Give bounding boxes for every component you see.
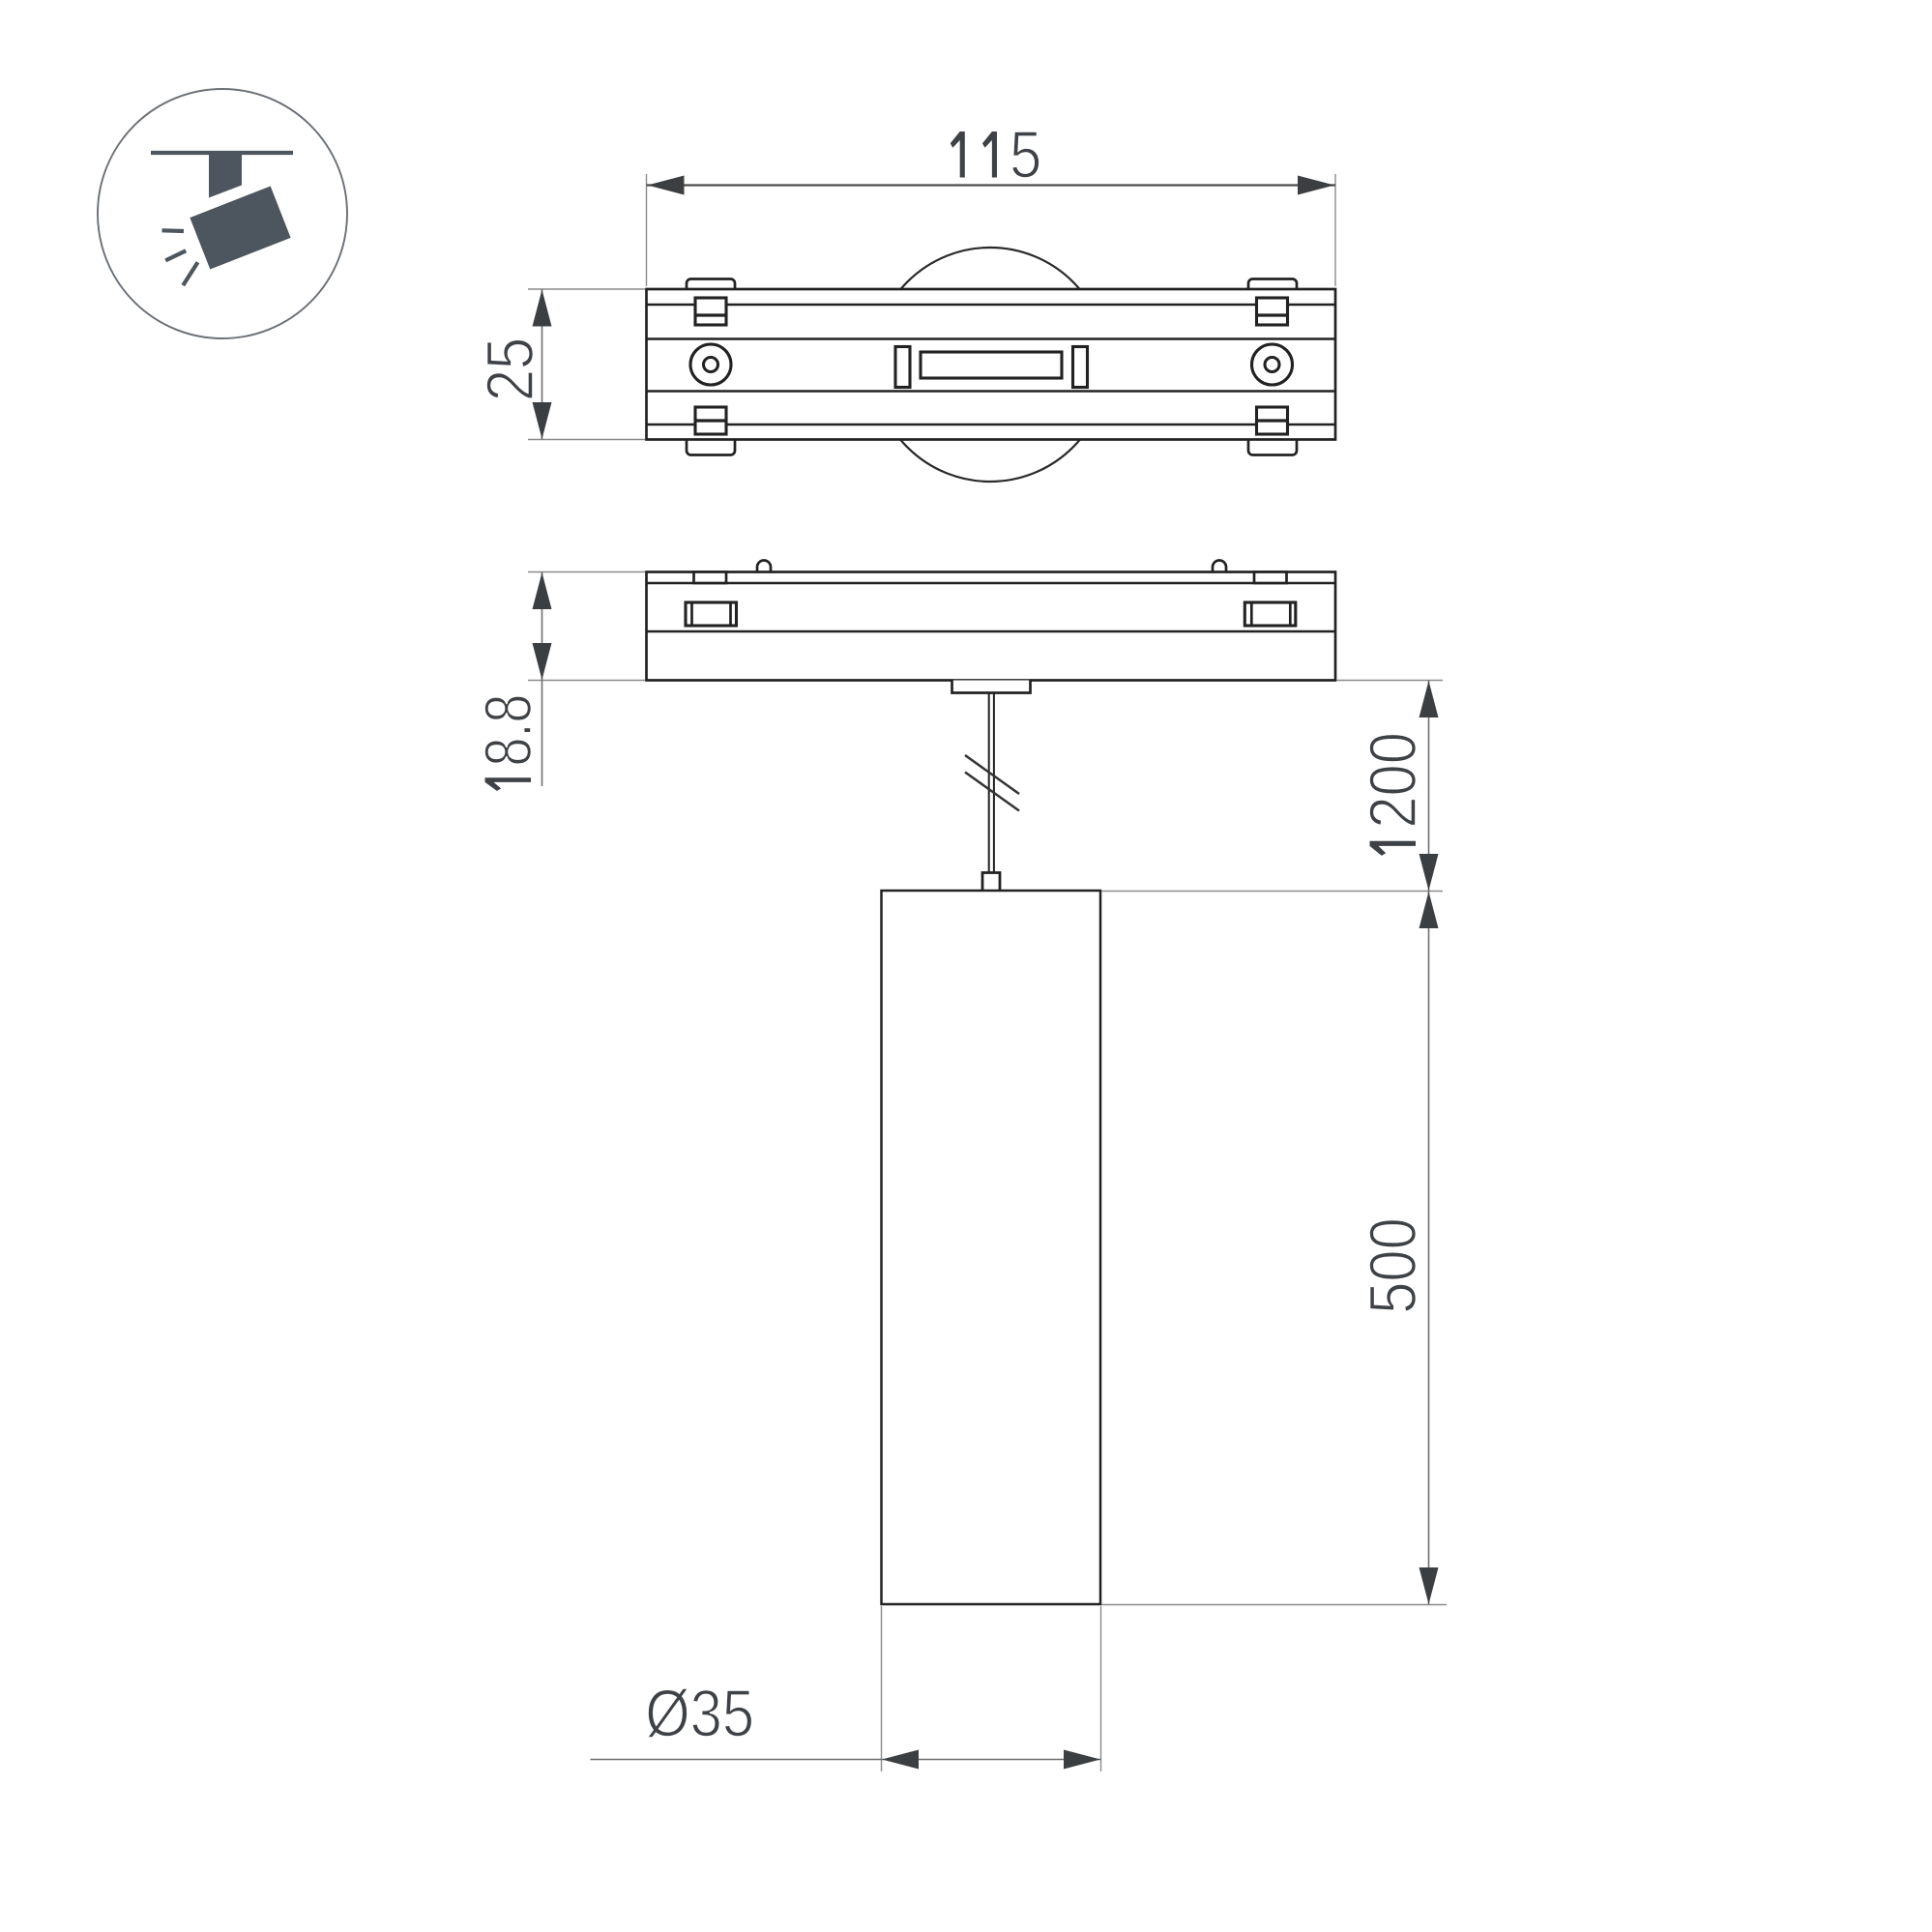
svg-text:500: 500	[1356, 1217, 1430, 1314]
svg-text:5: 5	[1010, 117, 1041, 191]
svg-text:Ø35: Ø35	[645, 1676, 754, 1750]
svg-text:8.8: 8.8	[472, 694, 546, 767]
svg-text:25: 25	[473, 337, 547, 401]
svg-text:200: 200	[1356, 732, 1430, 829]
